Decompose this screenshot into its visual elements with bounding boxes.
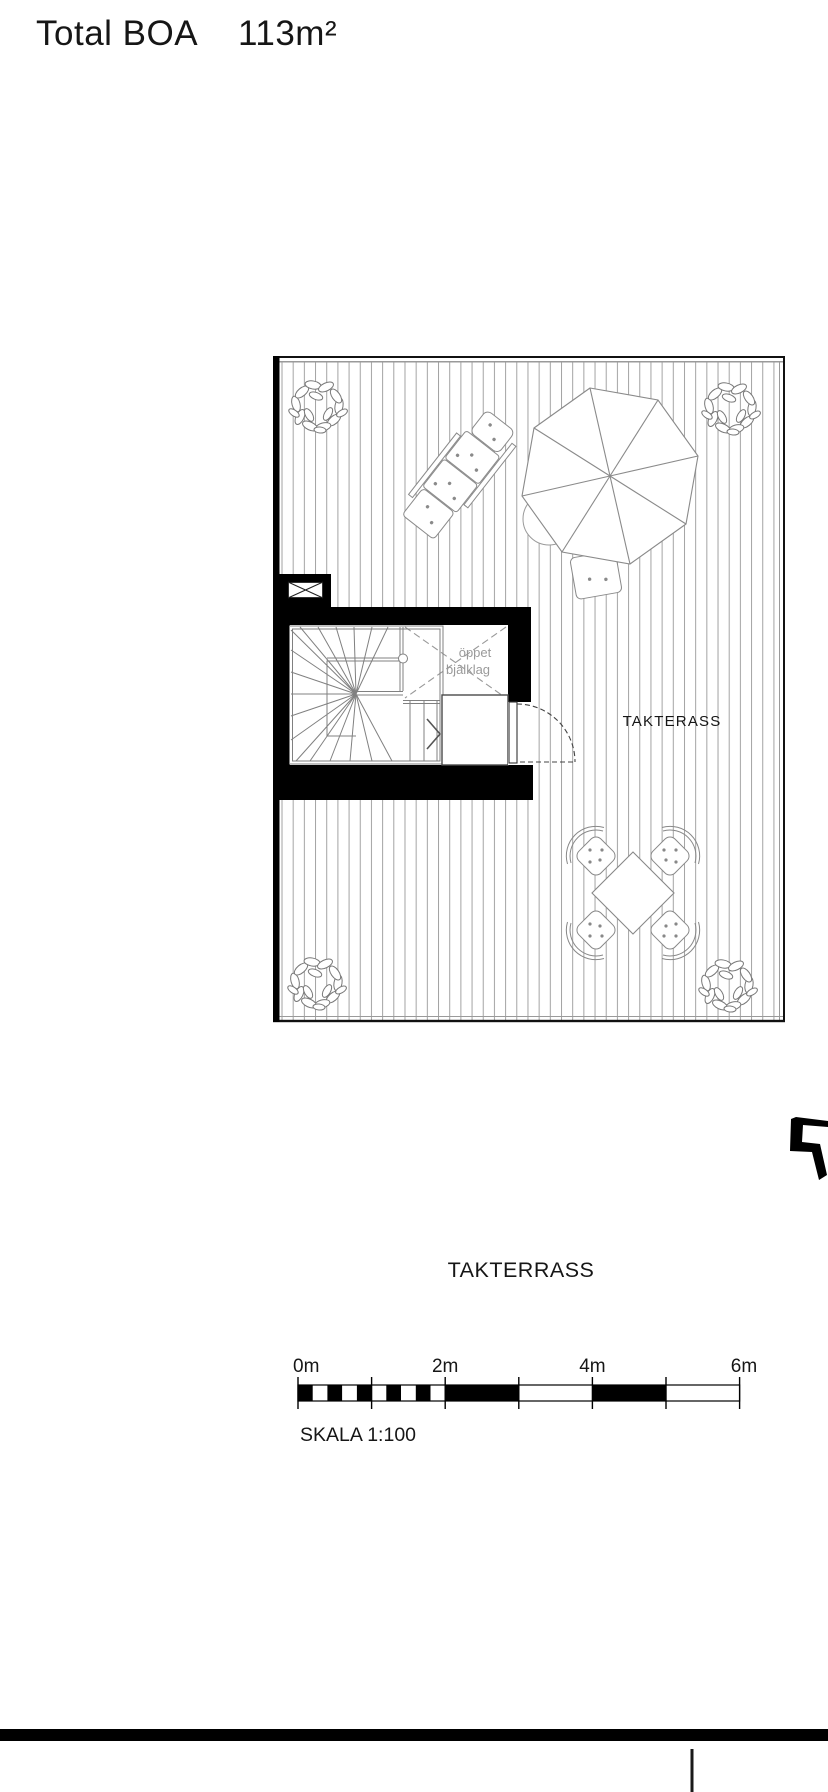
scale-tick-4m: 4m <box>579 1356 605 1377</box>
plan-border-bottom <box>273 1020 785 1022</box>
scale-tick-6m: 6m <box>731 1356 757 1377</box>
terrace-room-label: TAKTERASS <box>623 713 722 730</box>
scale-text: SKALA 1:100 <box>300 1424 416 1446</box>
roof-terrace-plan: öppet bjälklag <box>273 356 785 1022</box>
door-leaf <box>509 702 517 763</box>
scale-tick-2m: 2m <box>432 1356 458 1377</box>
scale-tick-0m: 0m <box>293 1356 319 1377</box>
plan-border-top <box>273 356 785 358</box>
scale-bar-blocks <box>298 1385 666 1401</box>
open-joist-label-line2: bjälklag <box>446 662 490 677</box>
enclosure-right-wall <box>508 607 531 702</box>
enclosure-top-wall <box>273 607 530 625</box>
vent-shaft <box>288 582 323 598</box>
clipped-edge-mark <box>790 1117 828 1180</box>
footer-vertical-rule <box>691 1749 694 1792</box>
page-title: Total BOA <box>36 14 198 53</box>
plan-border-left-thick <box>273 356 280 1022</box>
open-joist-label-line1: öppet <box>459 645 492 660</box>
plan-border-right <box>783 356 785 1022</box>
enclosure-bottom-wall <box>273 765 533 800</box>
total-area-value: 113m² <box>238 14 337 53</box>
floor-plan-sheet: Total BOA 113m² <box>0 0 828 1792</box>
footer-divider-bar <box>0 1729 828 1741</box>
plan-caption: TAKTERRASS <box>448 1258 595 1282</box>
scale-bar: 0m 2m 4m 6m SKALA 1:100 <box>293 1356 757 1446</box>
stair-landing <box>442 695 508 765</box>
